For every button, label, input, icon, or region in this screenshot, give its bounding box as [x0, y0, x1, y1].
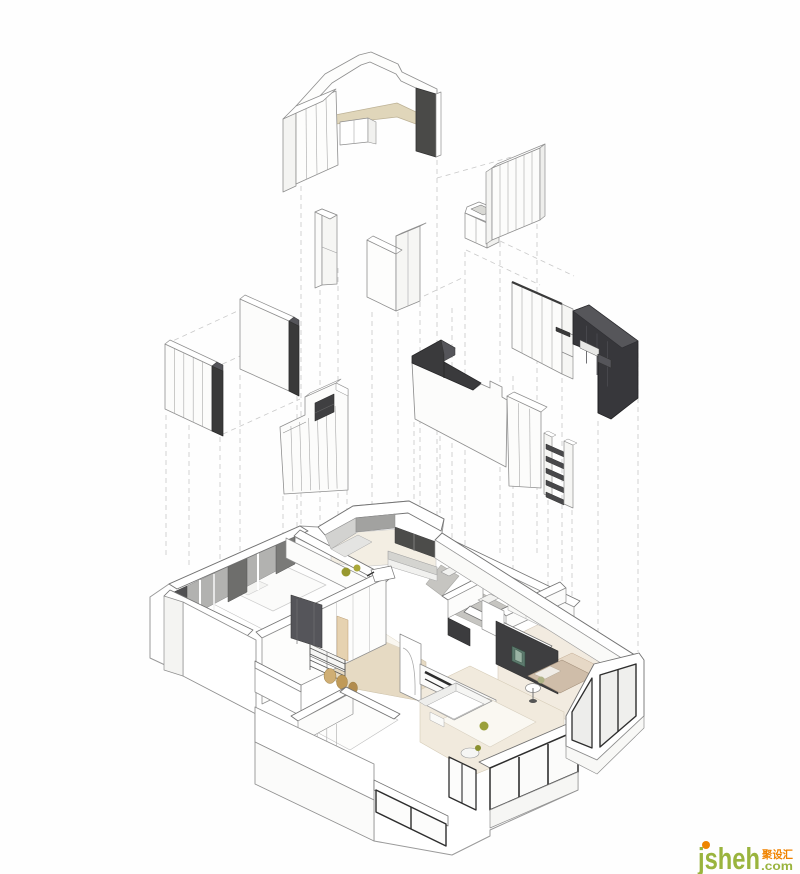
- svg-text:.com: .com: [761, 859, 793, 873]
